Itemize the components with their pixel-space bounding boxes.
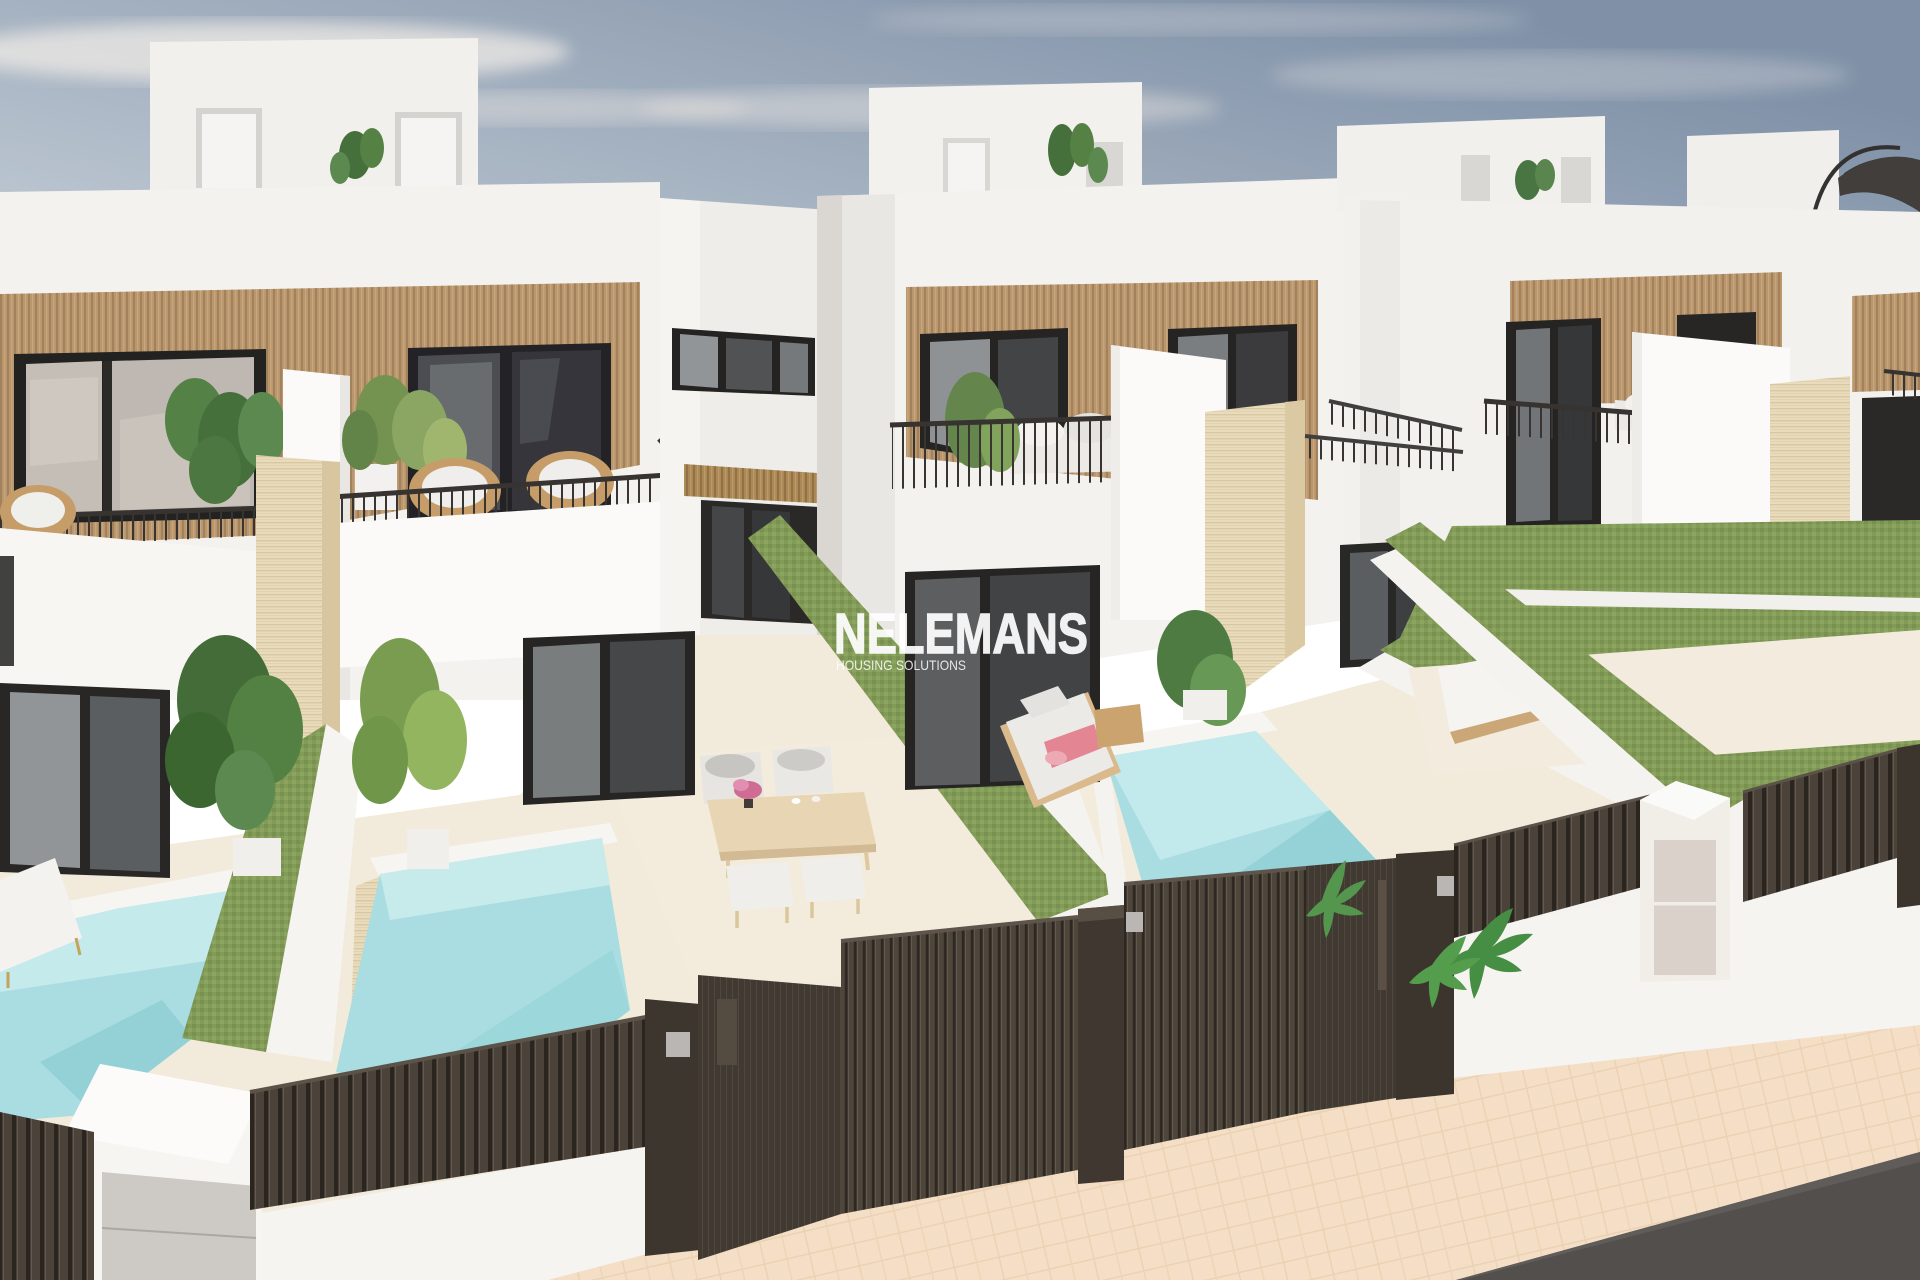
svg-text:HOUSING SOLUTIONS: HOUSING SOLUTIONS (836, 657, 966, 673)
